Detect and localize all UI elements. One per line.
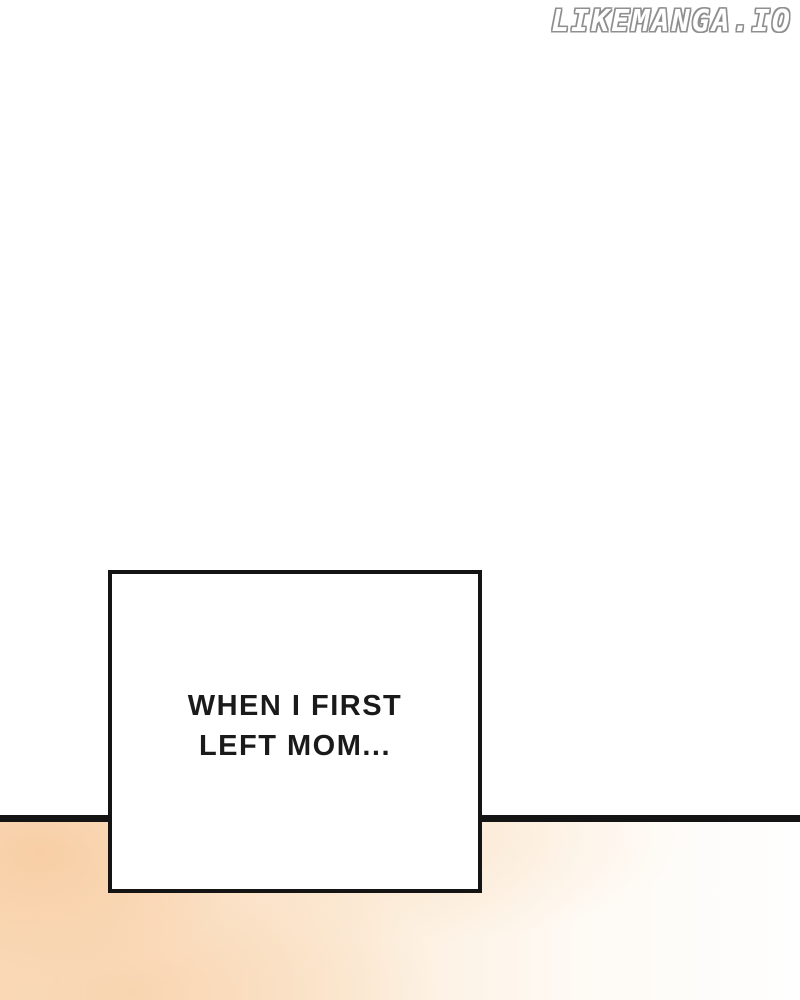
speech-text-line1: WHEN I FIRST [188, 686, 403, 726]
speech-box: WHEN I FIRST LEFT MOM... [108, 570, 482, 893]
site-watermark: LIKEMANGA.IO [551, 4, 792, 39]
manga-page: LIKEMANGA.IO WHEN I FIRST LEFT MOM... [0, 0, 800, 1000]
speech-text-line2: LEFT MOM... [188, 726, 403, 766]
speech-text: WHEN I FIRST LEFT MOM... [188, 686, 403, 766]
